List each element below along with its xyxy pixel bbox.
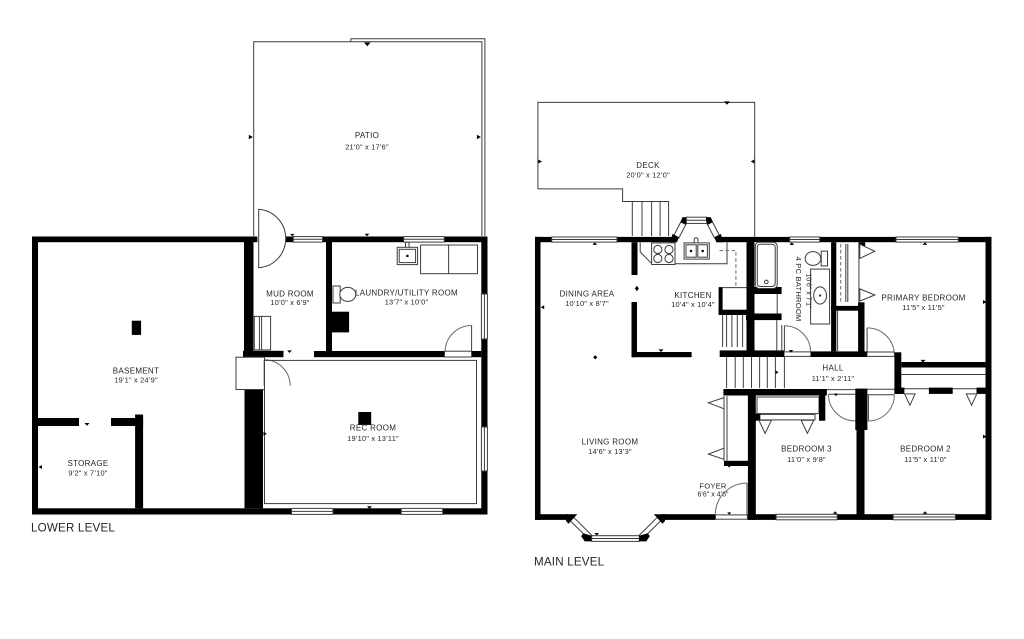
svg-text:19’10" x 13’11": 19’10" x 13’11"	[347, 434, 399, 443]
svg-text:10’0" x 6’9": 10’0" x 6’9"	[270, 298, 309, 307]
svg-text:BASEMENT: BASEMENT	[113, 367, 159, 376]
svg-text:11’0" x 9’8": 11’0" x 9’8"	[787, 455, 826, 464]
svg-text:20’0" x 12’0": 20’0" x 12’0"	[626, 171, 670, 180]
svg-text:MUD ROOM: MUD ROOM	[266, 290, 314, 299]
svg-text:13’7" x 10’0": 13’7" x 10’0"	[385, 297, 429, 306]
svg-text:11’1" x 2’11": 11’1" x 2’11"	[812, 374, 855, 383]
svg-text:LIVING ROOM: LIVING ROOM	[582, 438, 639, 447]
svg-text:BEDROOM 2: BEDROOM 2	[900, 445, 951, 454]
svg-text:11’5" x 11’0": 11’5" x 11’0"	[904, 455, 947, 464]
svg-text:19’1" x 24’9": 19’1" x 24’9"	[114, 376, 158, 385]
svg-text:DINING AREA: DINING AREA	[560, 290, 615, 299]
svg-text:BEDROOM 3: BEDROOM 3	[781, 445, 832, 454]
svg-text:10’6" x 7’1": 10’6" x 7’1"	[805, 274, 812, 309]
svg-text:HALL: HALL	[822, 364, 843, 373]
svg-text:REC ROOM: REC ROOM	[350, 424, 396, 433]
svg-text:4 PC BATHROOM: 4 PC BATHROOM	[794, 257, 803, 322]
svg-text:FOYER: FOYER	[699, 482, 726, 491]
svg-text:STORAGE: STORAGE	[67, 459, 108, 468]
svg-text:14’6" x 13’3": 14’6" x 13’3"	[588, 447, 632, 456]
svg-text:LOWER LEVEL: LOWER LEVEL	[31, 522, 115, 535]
svg-text:DECK: DECK	[636, 161, 660, 170]
svg-text:10’4" x 10’4": 10’4" x 10’4"	[671, 300, 715, 309]
svg-text:KITCHEN: KITCHEN	[674, 291, 711, 300]
svg-text:LAUNDRY/UTILITY ROOM: LAUNDRY/UTILITY ROOM	[355, 288, 458, 297]
svg-text:10’10" x 8’7": 10’10" x 8’7"	[565, 299, 609, 308]
svg-text:9’2" x 7’10": 9’2" x 7’10"	[68, 469, 107, 478]
svg-text:MAIN LEVEL: MAIN LEVEL	[534, 556, 605, 569]
svg-text:PATIO: PATIO	[355, 131, 379, 140]
svg-text:11’5" x 11’5": 11’5" x 11’5"	[902, 303, 945, 312]
svg-text:21’0" x 17’6": 21’0" x 17’6"	[345, 143, 389, 152]
svg-text:PRIMARY BEDROOM: PRIMARY BEDROOM	[881, 294, 965, 303]
